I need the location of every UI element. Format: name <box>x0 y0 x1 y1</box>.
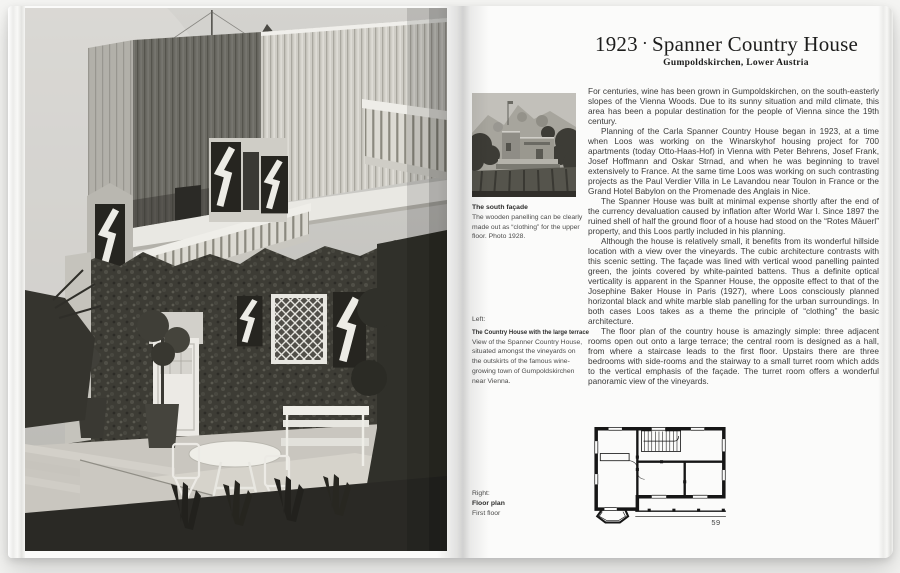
caption-floor-plan-title: Floor plan <box>472 499 586 509</box>
book-spread: 1923·Spanner Country House Gumpoldskirch… <box>0 0 900 573</box>
page-number: 59 <box>698 518 734 527</box>
page-title: 1923·Spanner Country House <box>595 32 825 57</box>
paragraph-3: The Spanner House was built at minimal e… <box>588 196 879 236</box>
open-book: 1923·Spanner Country House Gumpoldskirch… <box>8 6 893 558</box>
caption-south-facade-body: The wooden panelling can be clearly made… <box>472 213 586 242</box>
south-facade-illustration <box>472 93 576 197</box>
left-page-edges <box>8 6 25 558</box>
caption-floor-plan: Right: Floor plan First floor <box>472 489 586 518</box>
left-page-photograph <box>25 8 447 551</box>
title-separator: · <box>638 33 652 53</box>
caption-terrace-body: View of the Spanner Country House, situa… <box>472 338 586 387</box>
right-page-edges <box>878 6 893 558</box>
page-subtitle: Gumpoldskirchen, Lower Austria <box>595 58 825 68</box>
chapter-title-block: 1923·Spanner Country House Gumpoldskirch… <box>595 32 825 68</box>
paragraph-2: Planning of the Carla Spanner Country Ho… <box>588 126 879 196</box>
floor-plan-illustration <box>590 416 730 526</box>
paragraph-5: The floor plan of the country house is a… <box>588 326 879 386</box>
paragraph-1: For centuries, wine has been grown in Gu… <box>588 86 879 126</box>
floor-plan-drawing <box>590 416 730 526</box>
south-facade-thumbnail <box>472 93 576 197</box>
caption-terrace-prefix: Left: <box>472 315 586 325</box>
title-name: Spanner Country House <box>652 32 858 56</box>
caption-terrace-title: The Country House with the large terrace <box>472 328 589 338</box>
country-house-photo-illustration <box>25 8 447 551</box>
caption-floor-plan-prefix: Right: <box>472 489 586 499</box>
caption-terrace: Left: The Country House with the large t… <box>472 315 586 387</box>
body-text-column: For centuries, wine has been grown in Gu… <box>588 86 879 386</box>
caption-floor-plan-body: First floor <box>472 509 586 519</box>
paragraph-4: Although the house is relatively small, … <box>588 236 879 326</box>
title-year: 1923 <box>595 32 638 56</box>
caption-south-facade-title: The south façade <box>472 203 586 213</box>
caption-south-facade: The south façade The wooden panelling ca… <box>472 203 586 242</box>
balcony-door-shutters <box>209 138 288 222</box>
